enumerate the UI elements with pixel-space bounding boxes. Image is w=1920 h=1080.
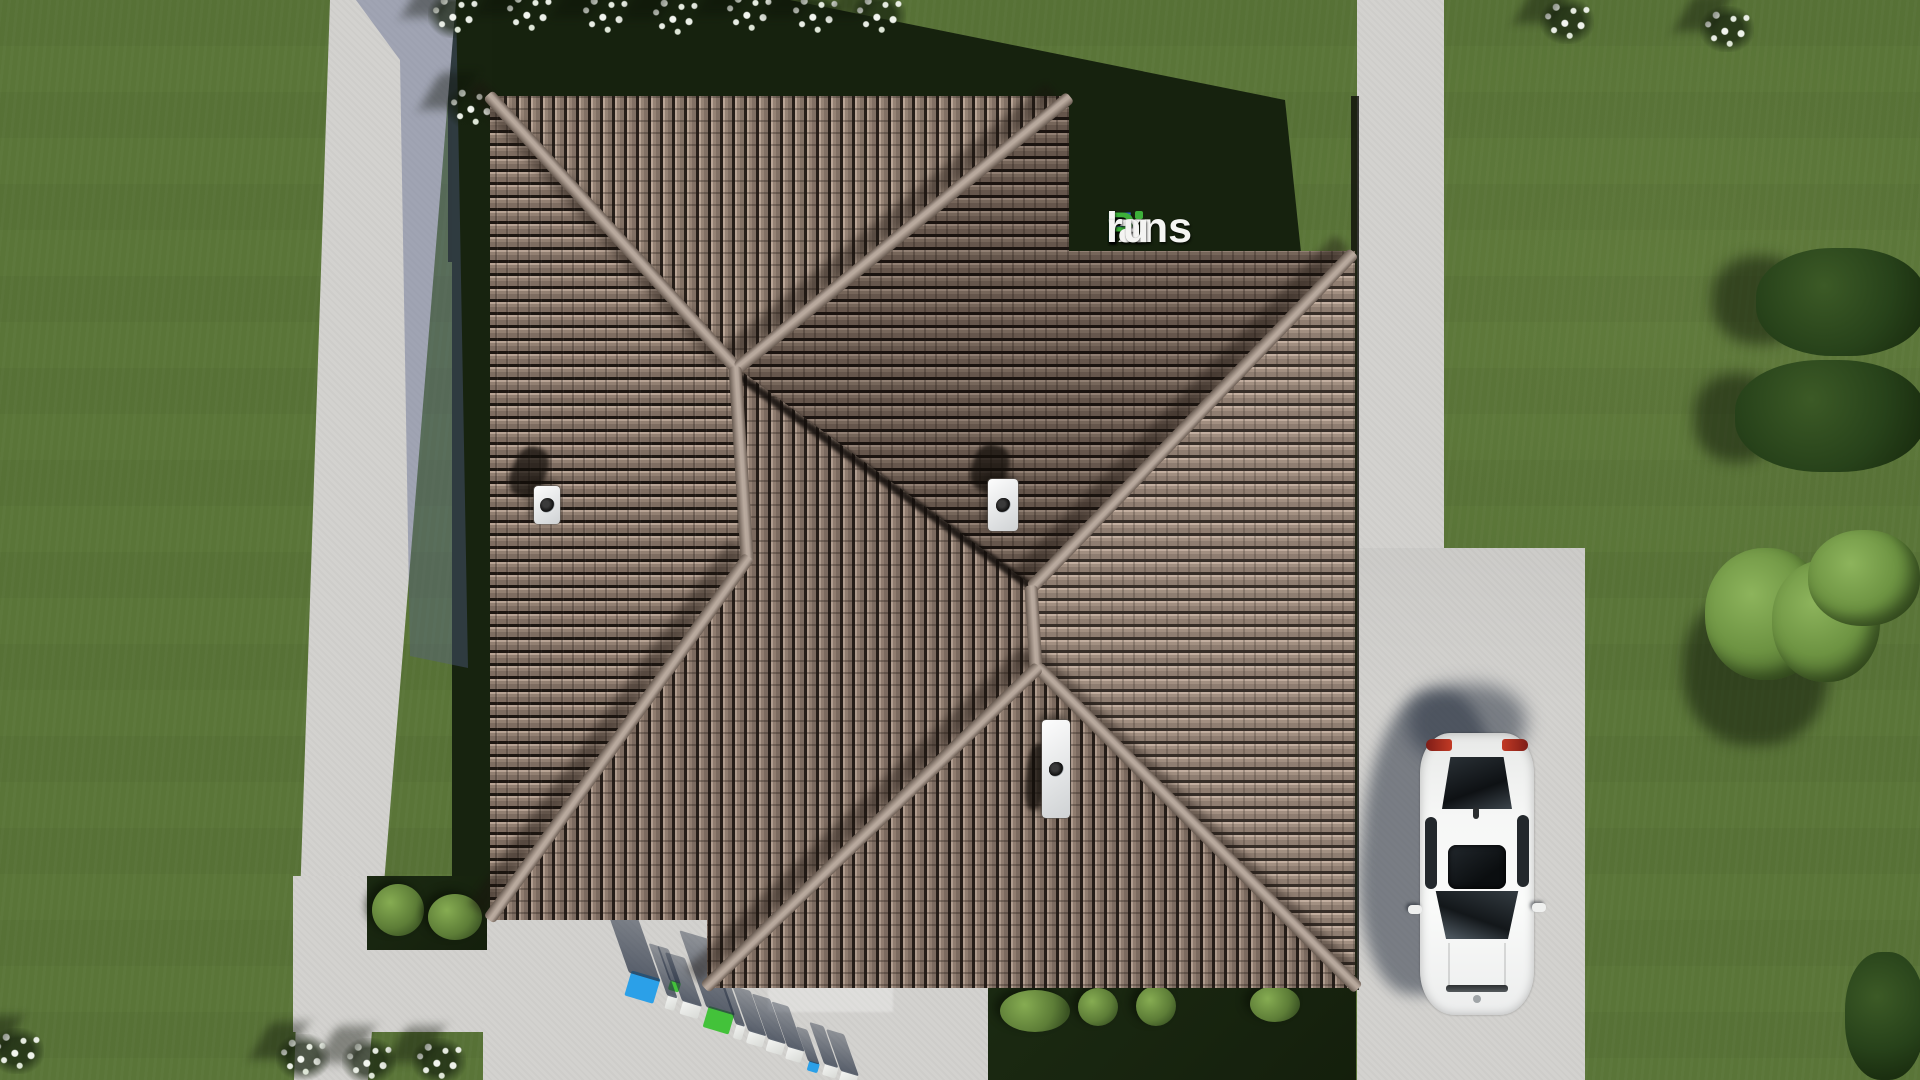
ground-watermark-block-r — [822, 1063, 839, 1078]
car-side-glass-left — [1425, 817, 1437, 889]
car-rear-window — [1442, 757, 1512, 809]
path-right — [1357, 0, 1444, 556]
car-windshield — [1434, 891, 1520, 939]
flower-cluster — [428, 0, 482, 38]
corner-bush — [1845, 952, 1920, 1080]
car-hood-crease — [1448, 943, 1450, 991]
flower-cluster — [1540, 0, 1594, 44]
ground-watermark-block-F — [624, 970, 660, 1003]
ground-watermark-block-i — [664, 994, 678, 1011]
aerial-render-scene: FixPlans.ru — [0, 0, 1920, 1080]
ground-watermark-block-x — [679, 1000, 701, 1019]
watermark-i-dot-green — [1135, 211, 1143, 219]
flower-cluster — [412, 1038, 466, 1080]
ground-watermark-block-dot — [807, 1061, 820, 1074]
ground-watermark-block-l — [733, 1023, 746, 1041]
car-mirror-right — [1532, 903, 1546, 912]
car-hood-crease — [1504, 943, 1506, 991]
flower-cluster — [1700, 6, 1754, 52]
car-antenna — [1473, 807, 1479, 819]
flower-cluster — [0, 1028, 44, 1074]
car-taillight-left — [1426, 739, 1452, 751]
tree-canopy — [1808, 530, 1920, 626]
shrub — [1735, 360, 1920, 472]
ground-watermark-block-u — [839, 1070, 859, 1080]
car-taillight-right — [1502, 739, 1528, 751]
flower-cluster — [852, 0, 906, 38]
bush — [1136, 986, 1176, 1026]
roof-vent-quad — [1042, 720, 1070, 818]
car-side-glass-right — [1517, 815, 1529, 887]
bush — [372, 884, 424, 936]
flower-cluster — [648, 0, 702, 40]
car-logo — [1473, 995, 1481, 1003]
bush — [1250, 986, 1300, 1022]
car-mirror-left — [1408, 905, 1422, 914]
ground-watermark-block-n — [765, 1038, 785, 1055]
car-white-sedan — [1420, 733, 1534, 1015]
bush — [1000, 990, 1070, 1032]
bush — [1078, 988, 1118, 1026]
ground-watermark-block-a — [746, 1030, 766, 1047]
roof-vent-double — [988, 479, 1018, 531]
ground-watermark-block-s — [785, 1046, 804, 1063]
car-grille — [1446, 985, 1508, 992]
roof-vent-single — [534, 486, 560, 524]
shrub — [1756, 248, 1920, 356]
car-sunroof — [1448, 845, 1506, 889]
flower-cluster — [502, 0, 556, 36]
flower-cluster — [578, 0, 632, 38]
